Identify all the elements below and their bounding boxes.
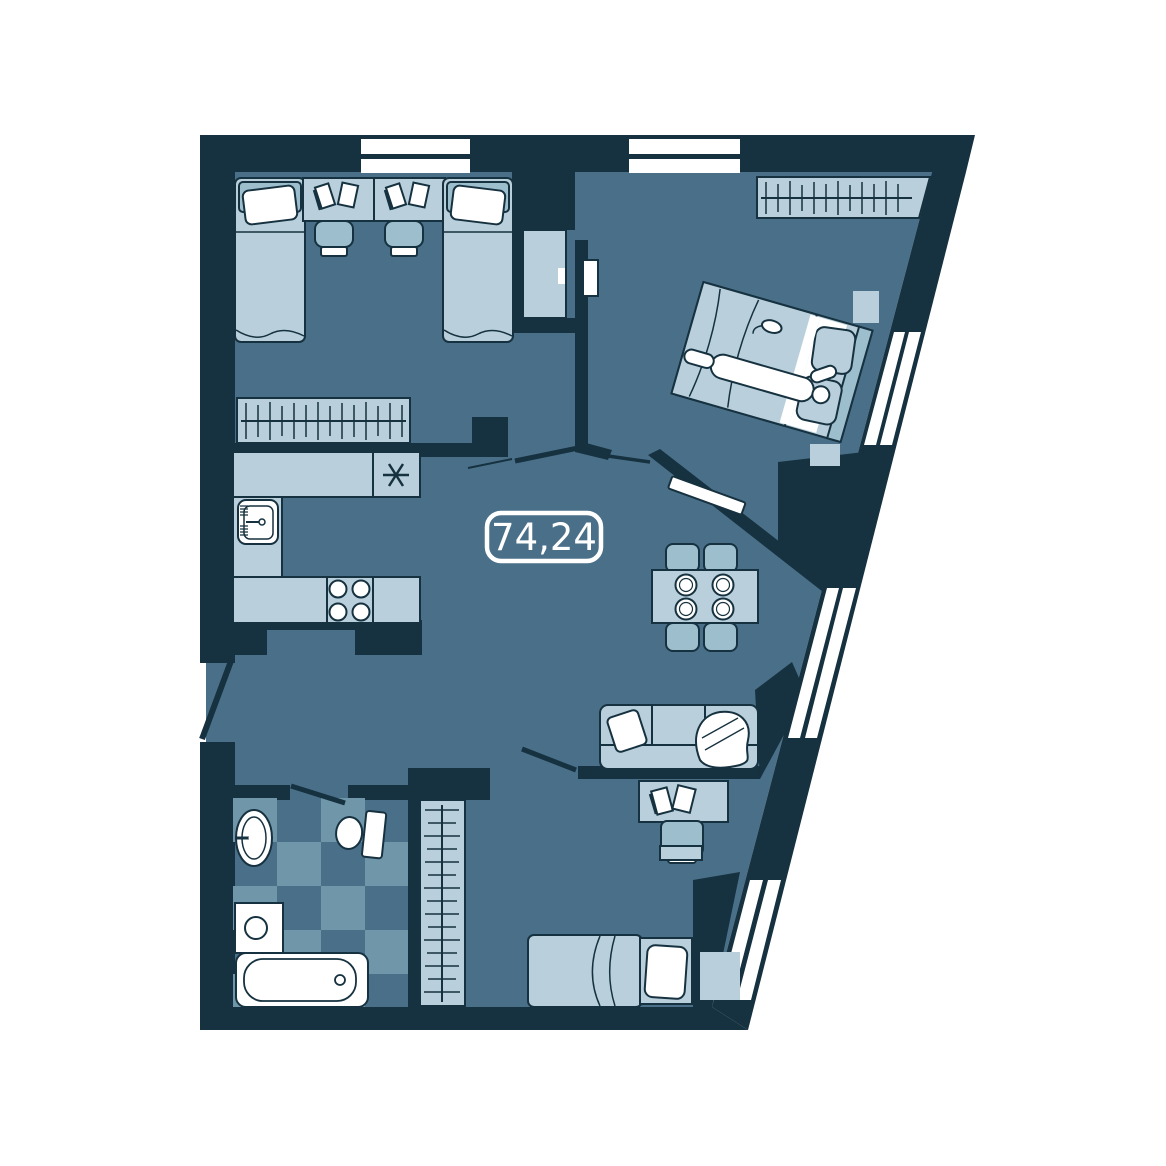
book xyxy=(409,183,429,208)
dining-chair xyxy=(704,623,737,651)
nightstand xyxy=(853,291,879,323)
dining-chair xyxy=(704,544,737,572)
wall-bathroom-north-right xyxy=(348,785,412,800)
wall-kitchen-pilaster-left xyxy=(233,620,267,655)
area-label: 74,24 xyxy=(487,513,601,561)
sink-icon xyxy=(235,810,272,866)
cabinet-handle xyxy=(558,268,565,284)
pillow xyxy=(450,185,506,225)
wall-left-lower xyxy=(200,742,235,1030)
wardrobe-rail xyxy=(237,398,410,443)
nightstand xyxy=(810,444,840,466)
wall-bathroom-north-left xyxy=(233,785,290,800)
wall-left-upper xyxy=(200,135,235,663)
kitchen-sink xyxy=(238,500,278,544)
wardrobe-rack xyxy=(757,177,930,218)
dining-chair xyxy=(666,623,699,651)
cabinet xyxy=(523,230,566,318)
nightstand xyxy=(700,952,740,1000)
chair xyxy=(315,221,353,247)
wall-bedroom1-south-block xyxy=(472,417,508,457)
floor-plan-svg: 74,24 xyxy=(0,0,1166,1166)
tv xyxy=(583,260,598,296)
wall-kitchen-pilaster-right xyxy=(355,620,422,655)
dining-table xyxy=(652,570,758,623)
coat-rack xyxy=(420,800,465,1006)
pillow xyxy=(644,945,688,1000)
wall-block-above-cabinet xyxy=(523,172,575,230)
area-label-text: 74,24 xyxy=(491,516,597,559)
single-bed-left xyxy=(235,178,305,342)
dining-chair xyxy=(666,544,699,572)
window-top-right xyxy=(629,139,740,173)
single-bed-right xyxy=(443,178,513,342)
floor-plan: 74,24 xyxy=(0,0,1166,1166)
chair-base xyxy=(321,247,347,256)
single-bed xyxy=(528,935,692,1007)
wall-bottom xyxy=(200,1007,748,1030)
wall-top xyxy=(200,135,975,172)
bathroom xyxy=(233,786,408,1007)
pillow xyxy=(242,185,298,225)
sofa xyxy=(600,705,758,769)
chair xyxy=(385,221,423,247)
entrance-threshold xyxy=(206,663,235,742)
washer-icon xyxy=(235,903,283,953)
chair-base xyxy=(391,247,417,256)
wall-hall-block xyxy=(408,768,490,800)
wall-bathroom-east xyxy=(408,777,420,1007)
shelf xyxy=(660,846,702,860)
book xyxy=(338,183,358,208)
bathtub-icon xyxy=(236,953,368,1007)
window-top-left xyxy=(361,139,470,173)
